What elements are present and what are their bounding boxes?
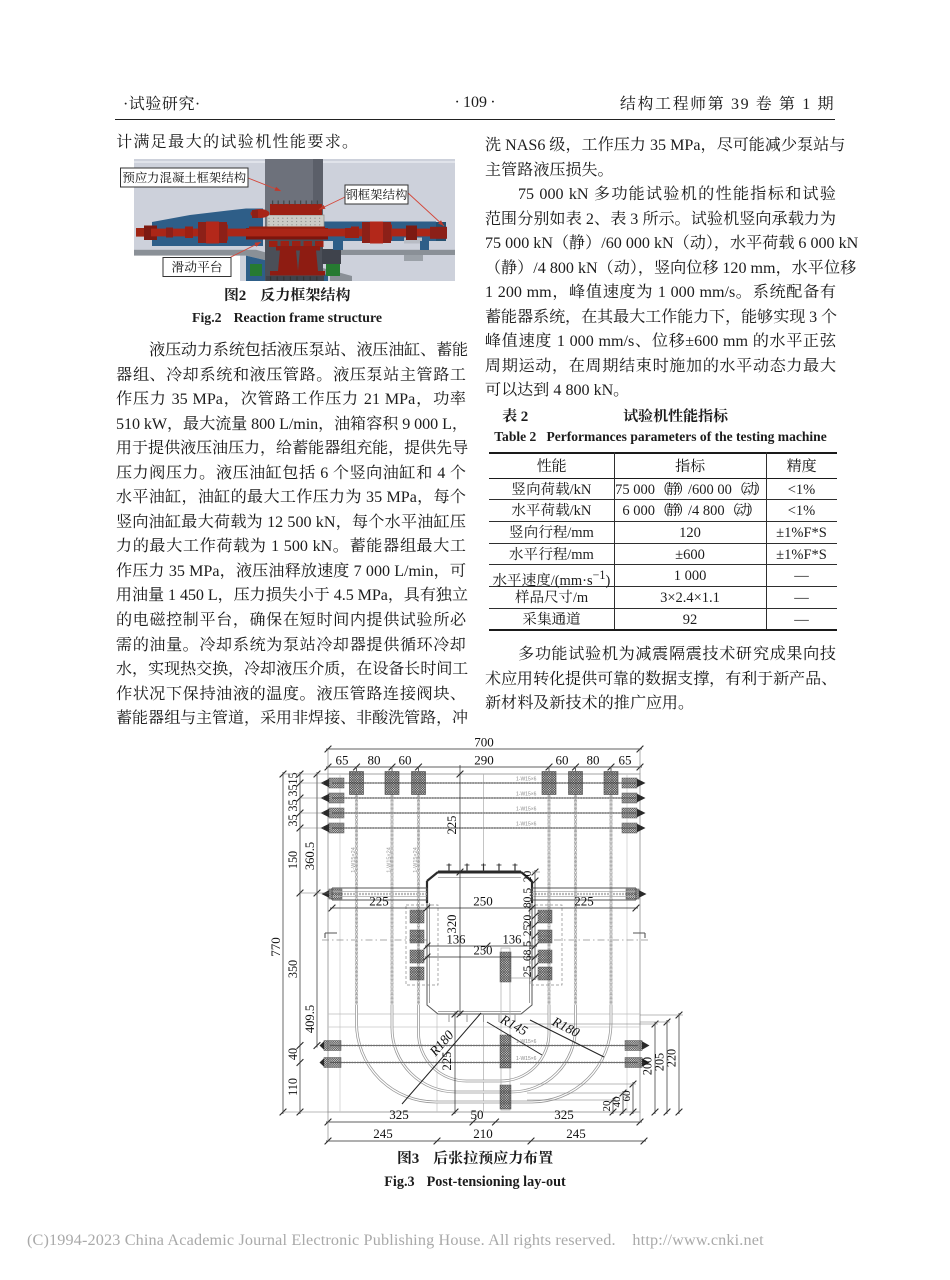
svg-text:136: 136 xyxy=(503,933,522,947)
svg-text:65: 65 xyxy=(336,753,349,768)
svg-text:250: 250 xyxy=(473,894,493,909)
svg-text:40: 40 xyxy=(286,1048,300,1060)
svg-text:700: 700 xyxy=(474,735,494,750)
svg-text:预应力混凝土框架结构: 预应力混凝土框架结构 xyxy=(122,168,246,186)
svg-text:225: 225 xyxy=(574,894,594,909)
svg-text:35: 35 xyxy=(286,814,300,826)
svg-text:1-W15×24: 1-W15×24 xyxy=(351,847,357,873)
svg-text:360.5: 360.5 xyxy=(303,842,317,870)
svg-text:320: 320 xyxy=(445,915,459,934)
svg-text:245: 245 xyxy=(373,1126,393,1141)
svg-text:35: 35 xyxy=(286,799,300,811)
svg-text:80: 80 xyxy=(587,753,600,768)
svg-text:1-W15×6: 1-W15×6 xyxy=(516,822,537,828)
svg-text:1-W15×24: 1-W15×24 xyxy=(413,847,419,873)
svg-text:1-W15×24: 1-W15×24 xyxy=(387,847,393,873)
svg-text:245: 245 xyxy=(566,1126,586,1141)
svg-text:68.5: 68.5 xyxy=(521,941,534,961)
svg-text:325: 325 xyxy=(554,1107,574,1122)
svg-text:225: 225 xyxy=(369,894,389,909)
svg-text:80.5: 80.5 xyxy=(521,888,534,908)
svg-text:50: 50 xyxy=(471,1107,484,1122)
svg-text:25: 25 xyxy=(521,966,534,978)
svg-text:20: 20 xyxy=(521,915,534,927)
svg-text:65: 65 xyxy=(619,753,632,768)
svg-text:210: 210 xyxy=(473,1126,493,1141)
svg-text:20: 20 xyxy=(601,1100,613,1112)
svg-text:250: 250 xyxy=(474,944,493,958)
svg-text:290: 290 xyxy=(474,753,494,768)
svg-text:350: 350 xyxy=(286,960,300,978)
svg-text:60: 60 xyxy=(556,753,569,768)
svg-text:136: 136 xyxy=(447,933,466,947)
svg-text:220: 220 xyxy=(665,1049,679,1067)
svg-text:770: 770 xyxy=(268,937,283,957)
svg-text:80: 80 xyxy=(368,753,381,768)
svg-text:25: 25 xyxy=(521,925,534,937)
svg-text:钢框架结构: 钢框架结构 xyxy=(346,185,408,203)
svg-text:60: 60 xyxy=(399,753,412,768)
svg-text:225: 225 xyxy=(440,1052,454,1071)
svg-text:35: 35 xyxy=(286,784,300,796)
svg-text:150: 150 xyxy=(286,851,300,869)
svg-text:110: 110 xyxy=(286,1078,300,1096)
svg-text:1-W15×6: 1-W15×6 xyxy=(516,807,537,813)
svg-text:1-W15×6: 1-W15×6 xyxy=(516,1056,537,1062)
svg-text:1-W15×6: 1-W15×6 xyxy=(516,777,537,783)
svg-text:1-W15×6: 1-W15×6 xyxy=(516,1039,537,1045)
svg-text:325: 325 xyxy=(389,1107,409,1122)
svg-text:滑动平台: 滑动平台 xyxy=(171,257,222,276)
svg-text:1-W15×6: 1-W15×6 xyxy=(516,792,537,798)
svg-text:225: 225 xyxy=(445,816,459,835)
svg-text:409.5: 409.5 xyxy=(303,1005,317,1033)
